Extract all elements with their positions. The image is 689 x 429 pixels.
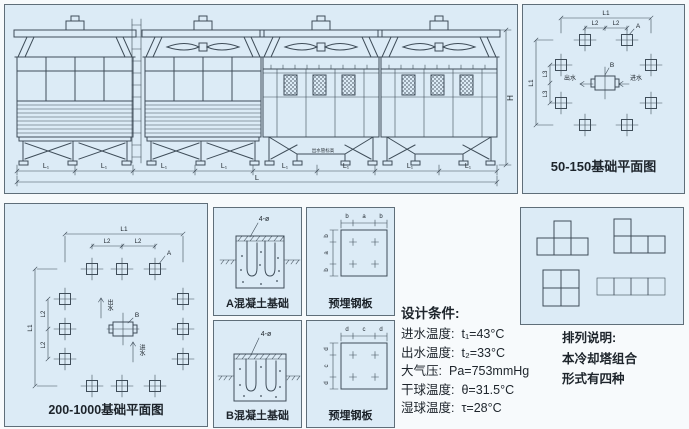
dim-lines [330, 333, 387, 389]
arrangement-note-title: 排列说明: [562, 328, 637, 349]
bolt-hole-marks [350, 352, 379, 381]
tower-unit-1 [14, 16, 136, 165]
arrangement-forms-drawing [521, 208, 683, 324]
plan-50-150-caption: 50-150基础平面图 [523, 156, 684, 175]
dim-d: d [379, 327, 382, 333]
ground-lines [220, 260, 300, 264]
design-conditions: 设计条件: 进水温度:t₁=43°C 出水温度:t₂=33°C 大气压:Pa=7… [401, 302, 529, 418]
foundation-a-panel: 4-ø A混凝土基础 [213, 207, 302, 316]
bolt-dim-label: 4-ø [261, 331, 272, 338]
plan-50-150-panel: B A 出水 进水 L1 L2 L2 L1 L3 L3 50-150基础平面图 [522, 4, 685, 194]
dim-a: a [324, 251, 330, 255]
elevation-panel: L₁ L₁ L₁ L₁ L₁ L₁ L₁ L₁ L H 出水管标高 [4, 4, 518, 194]
foundation-b-caption: B混凝土基础 [214, 407, 301, 423]
dim-l3: L3 [543, 90, 549, 97]
condition-label: 湿球温度: [401, 401, 454, 415]
embedded-plate-ab-panel: b a b b a b 预埋钢板 [306, 207, 395, 316]
dim-l2-left: L2 [41, 310, 47, 317]
dim-c: c [363, 327, 366, 333]
dim-l2: L2 [613, 21, 620, 27]
embedded-plate-cd-caption: 预埋钢板 [307, 407, 394, 423]
dim-a: a [362, 214, 366, 220]
aggregate-dots [239, 366, 281, 398]
design-condition-row: 干球温度:θ=31.5°C [401, 381, 529, 400]
outlet-water-label: 出水 [106, 298, 113, 311]
plan-200-1000-caption: 200-1000基础平面图 [5, 399, 207, 418]
dim-l1-label: L₁ [101, 163, 108, 170]
dim-l3: L3 [543, 70, 549, 77]
dim-lines [330, 220, 387, 276]
center-foundation-b [591, 67, 619, 99]
design-condition-row: 进水温度:t₁=43°C [401, 325, 529, 344]
anchor-bolts [246, 359, 276, 391]
embedded-plate-ab-drawing: b a b b a b [307, 208, 394, 296]
foundation-a-drawing: 4-ø [214, 208, 301, 296]
design-condition-row: 出水温度:t₂=33°C [401, 344, 529, 363]
cooling-tower-elevation-drawing: L₁ L₁ L₁ L₁ L₁ L₁ L₁ L₁ L H 出水管标高 [5, 5, 517, 193]
arrangement-note-line: 本冷却塔组合 [562, 349, 637, 370]
steel-plate [341, 230, 387, 276]
inlet-water-label: 进水 [630, 74, 642, 82]
dim-l2: L2 [592, 21, 599, 27]
condition-label: 大气压: [401, 364, 442, 378]
label-a-leader [159, 256, 165, 264]
arrangement-note: 排列说明: 本冷却塔组合 形式有四种 [562, 328, 637, 390]
dim-l1-label: L₁ [465, 163, 472, 170]
condition-label: 出水温度: [401, 346, 454, 360]
dim-l1-top: L1 [602, 10, 610, 17]
dim-l1-label: L₁ [343, 163, 350, 170]
arrangement-square-shape [543, 270, 579, 306]
bolt-dim-leader [251, 338, 259, 355]
dim-l1-label: L₁ [161, 163, 168, 170]
dim-d: d [324, 347, 330, 350]
fan-blades [167, 43, 475, 51]
foundation-b-drawing: 4-ø [214, 321, 301, 408]
aggregate-dots [240, 251, 280, 285]
foundation-blocks [54, 258, 194, 397]
arrangement-forms-panel [520, 207, 684, 325]
plan-50-150-drawing: B A 出水 进水 L1 L2 L2 L1 L3 L3 [523, 5, 684, 157]
plan-200-1000-drawing: B A 出水 进水 L1 L2 L2 L1 L2 L2 [5, 204, 207, 402]
dim-b: b [324, 234, 330, 238]
arrangement-row-shape [597, 278, 665, 295]
steel-plate [341, 343, 387, 389]
condition-value: t₁=43°C [461, 327, 504, 341]
dim-l1-label: L₁ [407, 163, 414, 170]
design-condition-row: 大气压:Pa=753mmHg [401, 362, 529, 381]
label-b: B [610, 62, 614, 69]
concrete-block [234, 354, 286, 401]
inlet-arrow [131, 342, 136, 362]
dim-b: b [324, 268, 330, 272]
dim-lines [534, 16, 653, 127]
tower-unit-4 [378, 16, 500, 165]
condition-value: θ=31.5°C [461, 383, 514, 397]
condition-label: 进水温度: [401, 327, 454, 341]
bolt-hole-marks [350, 239, 379, 268]
arrangement-note-line: 形式有四种 [562, 369, 637, 390]
plan-200-1000-panel: B A 出水 进水 L1 L2 L2 L1 L2 L2 200-1000基础平面… [4, 203, 208, 427]
dim-d: d [345, 327, 348, 333]
dim-l1-left: L1 [27, 324, 34, 332]
foundation-a-caption: A混凝土基础 [214, 295, 301, 311]
bolt-dim-label: 4-ø [259, 216, 270, 223]
dim-l1-top: L1 [120, 226, 128, 233]
foundation-b-panel: 4-ø B混凝土基础 [213, 320, 302, 428]
design-condition-row: 湿球温度:τ=28°C [401, 399, 529, 418]
condition-value: Pa=753mmHg [449, 364, 529, 378]
arrangement-l-shape [614, 219, 665, 253]
pipe-elevation-note: 出水管标高 [312, 147, 335, 154]
dim-d: d [324, 381, 330, 384]
dim-l2: L2 [135, 239, 142, 245]
dim-l-label: L [255, 173, 259, 182]
inlet-arrow [619, 82, 629, 87]
condition-label: 干球温度: [401, 383, 454, 397]
tower-unit-2 [142, 16, 264, 165]
dim-l2: L2 [104, 239, 111, 245]
anchor-bolts [247, 241, 275, 276]
inlet-water-label: 进水 [138, 343, 145, 356]
foundation-blocks [550, 29, 662, 136]
design-conditions-title: 设计条件: [401, 302, 529, 322]
dim-l2-left: L2 [41, 341, 47, 348]
embedded-plate-cd-drawing: d c d d c d [307, 321, 394, 408]
outlet-arrow [99, 298, 104, 318]
dim-c: c [324, 365, 330, 368]
condition-value: τ=28°C [461, 401, 501, 415]
embedded-plate-ab-caption: 预埋钢板 [307, 295, 394, 311]
ground-lines [218, 376, 300, 380]
tower-unit-3 [260, 16, 382, 165]
label-a: A [167, 250, 172, 257]
dim-l1-label: L₁ [221, 163, 228, 170]
dim-h-label: H [506, 95, 515, 101]
label-b: B [135, 312, 139, 319]
dim-b: b [379, 214, 383, 220]
arrangement-t-shape [537, 221, 588, 255]
embedded-plate-cd-panel: d c d d c d 预埋钢板 [306, 320, 395, 428]
dim-b: b [345, 214, 349, 220]
label-b-leader [605, 68, 609, 75]
bolt-dim-leader [250, 223, 258, 237]
label-a: A [636, 23, 641, 30]
dim-l1-label: L₁ [282, 163, 289, 170]
outlet-water-label: 出水 [564, 74, 576, 82]
condition-value: t₂=33°C [461, 346, 505, 360]
dim-l1-left: L1 [528, 79, 535, 87]
dim-l1-label: L₁ [43, 163, 50, 170]
